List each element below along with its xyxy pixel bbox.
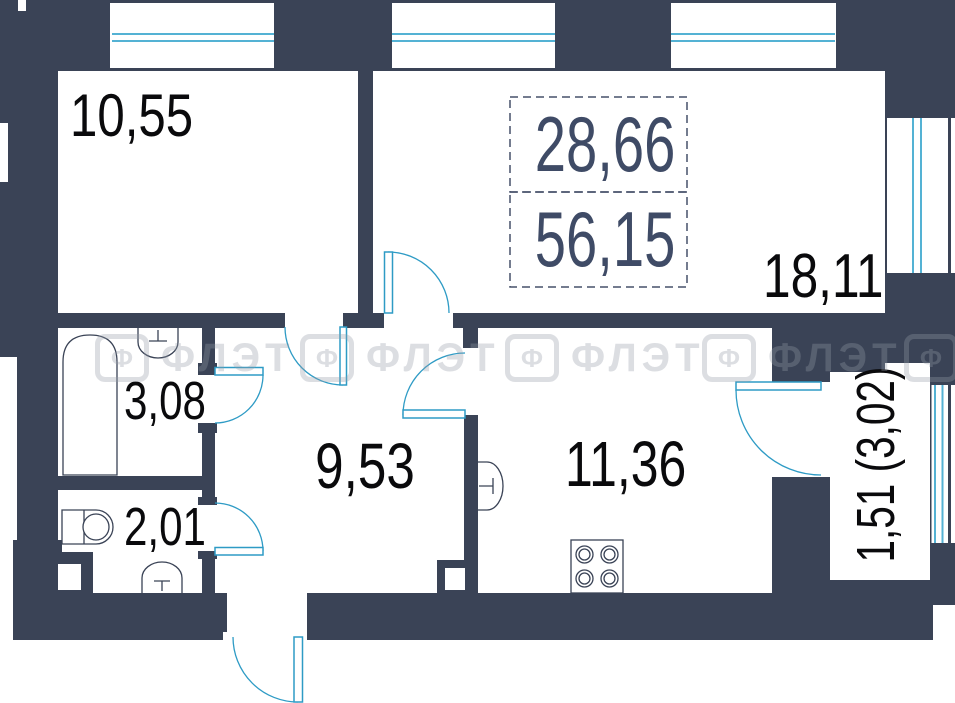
room-area-label-wc: 2,01 (122, 500, 208, 554)
stove-burner-icon (579, 573, 590, 584)
wall-segment (836, 0, 955, 70)
door-leaf-wc (215, 548, 263, 556)
watermark-text: ФЛЭТ (366, 336, 500, 381)
room-area-label-living-room: 18,11 (763, 246, 883, 308)
wall-segment (948, 118, 951, 273)
door-leaf-entrance (294, 637, 303, 702)
flet-logo-icon: Ф (505, 334, 559, 382)
door-arc-balcony (736, 390, 821, 475)
wall-segment (0, 0, 110, 70)
window-glazing (392, 33, 555, 35)
wall-segment (772, 477, 830, 593)
door-arc-living-room (388, 252, 449, 313)
door-leaf-kitchen (403, 410, 465, 418)
flet-logo-letter: Ф (521, 343, 543, 374)
shaft-notch (445, 568, 465, 590)
window-glazing (671, 33, 835, 35)
wall-segment (30, 476, 215, 490)
flet-logo-letter: Ф (316, 343, 338, 374)
watermark-text: ФЛЭТ (161, 336, 295, 381)
wall-segment (274, 0, 392, 70)
wall-segment (30, 313, 285, 328)
window-glazing (671, 40, 835, 42)
wall-segment (0, 0, 836, 3)
flet-logo-letter: Ф (920, 343, 942, 374)
wall-segment (948, 385, 951, 543)
flet-logo-letter: Ф (718, 343, 740, 374)
window-glazing (942, 385, 944, 543)
watermark-text: ФЛЭТ (768, 336, 902, 381)
wall-segment (202, 433, 215, 476)
wall-segment (343, 313, 384, 328)
shaft-notch (18, 0, 26, 11)
wall-segment (0, 70, 58, 123)
floor-plan: 10,55 18,11 3,08 2,01 9,53 11,36 1,51 (3… (0, 0, 955, 703)
watermark: Ф ФЛЭТ (505, 334, 705, 382)
flet-logo-icon: Ф (904, 334, 955, 382)
door-arc-entrance (233, 637, 298, 702)
door-leaf-balcony (736, 382, 821, 390)
window-glazing (112, 40, 274, 42)
room-area-label-hall: 9,53 (305, 434, 425, 498)
wall-segment (17, 357, 58, 553)
window-glazing (920, 118, 922, 273)
wall-segment (885, 118, 887, 273)
room-area-label-bathroom: 3,08 (122, 374, 208, 428)
summary-living-area-value: 28,66 (535, 97, 662, 192)
room-area-label-bedroom: 10,55 (70, 86, 193, 146)
toilet-bowl-icon (83, 514, 109, 540)
window-glazing (934, 385, 936, 543)
window-glazing (112, 33, 274, 35)
door-arc-bathroom (215, 375, 263, 423)
watermark: Ф ФЛЭТ (300, 334, 500, 382)
door-arc-wc (215, 503, 263, 551)
room-area-label-balcony: 1,51 (3,02) (849, 398, 903, 563)
stove-burner-icon (604, 573, 615, 584)
wall-segment (930, 385, 932, 543)
window-glazing (392, 40, 555, 42)
wall-segment (453, 313, 885, 328)
summary-total-area-value: 56,15 (535, 192, 662, 287)
room-area-label-kitchen: 11,36 (565, 432, 686, 496)
stove-burner-icon (579, 549, 590, 560)
flet-logo-icon: Ф (300, 334, 354, 382)
flet-logo-icon: Ф (702, 334, 756, 382)
wall-segment (58, 68, 885, 71)
wall-segment (0, 182, 58, 357)
watermark: Ф ФЛЭТ (702, 334, 902, 382)
flet-logo-icon: Ф (95, 334, 149, 382)
flet-logo-letter: Ф (111, 343, 133, 374)
watermark: Ф ФЛЭТ (95, 334, 295, 382)
watermark: Ф ФЛЭТ (904, 334, 955, 382)
wall-segment (555, 0, 671, 70)
stove-burner-icon (604, 549, 615, 560)
door-leaf-living-room (385, 252, 393, 313)
wall-segment (202, 559, 215, 593)
shaft-notch (58, 564, 81, 590)
wall-segment (930, 543, 955, 605)
wall-segment (8, 123, 58, 182)
wall-segment (358, 70, 373, 313)
wall-segment (885, 70, 955, 118)
wall-segment (62, 593, 227, 640)
watermark-text: ФЛЭТ (571, 336, 705, 381)
window-glazing (912, 118, 914, 273)
shaft-notch (223, 632, 230, 640)
